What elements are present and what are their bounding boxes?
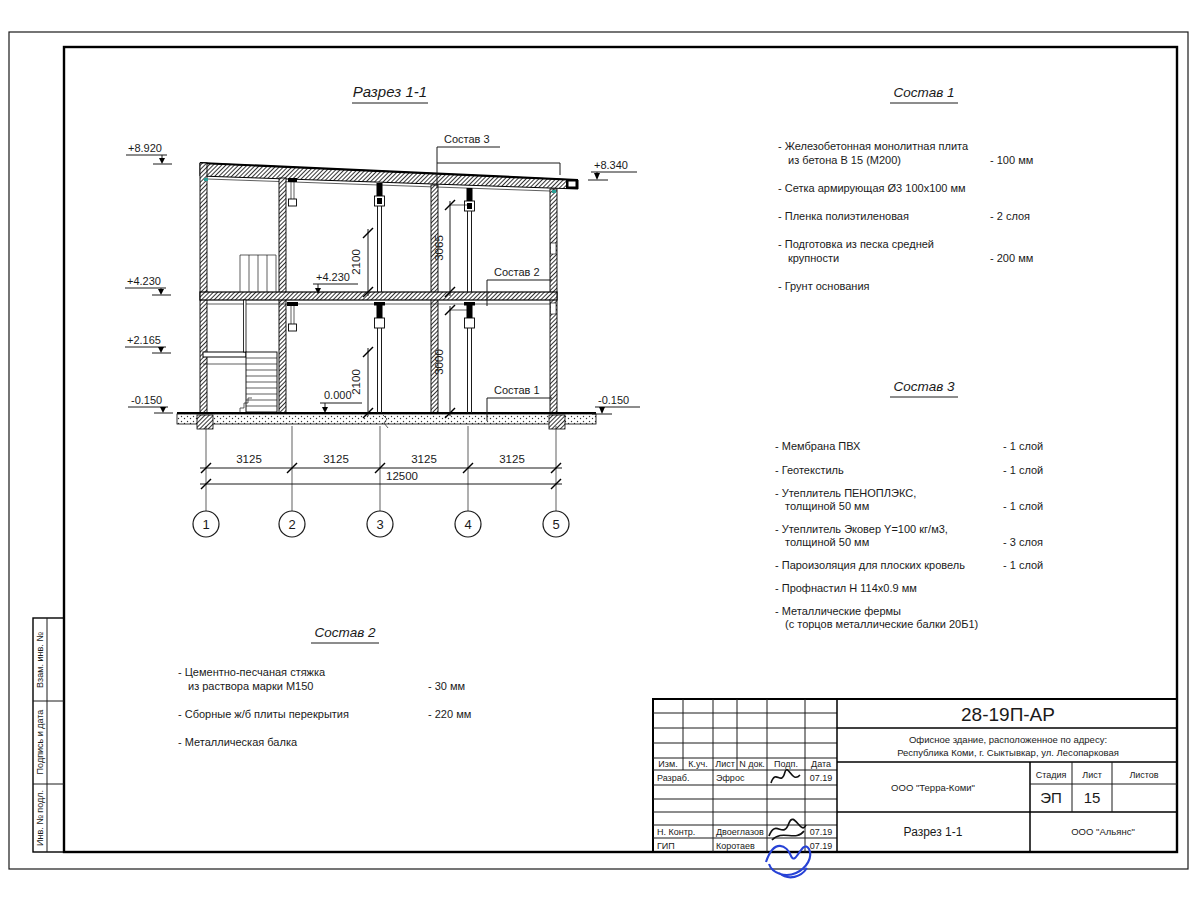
list-item: - Сборные ж/б плиты перекрытия <box>178 708 349 720</box>
grid-5: 5 <box>552 517 559 532</box>
row-role: Разраб. <box>657 773 689 783</box>
list-item: - Железобетонная монолитная плита <box>778 140 969 152</box>
list-item: из раствора марки М150 <box>188 680 313 692</box>
signature-razrab <box>771 770 800 783</box>
list-item: - Металлическая балка <box>178 736 298 748</box>
stair-railing <box>240 255 276 292</box>
strip-label-vzam: Взам. инв. № <box>35 632 45 688</box>
th-sheet: Лист <box>1082 770 1102 780</box>
contractor-name: ООО "Альянс" <box>1071 826 1135 837</box>
left-attribute-strip: Взам. инв. № Подпись и дата Инв. № подл. <box>33 618 64 852</box>
object-line2: Республика Коми, г. Сыктывкар, ул. Лесоп… <box>897 747 1119 758</box>
section-title: Разрез 1-1 <box>353 83 427 100</box>
list-item: - Утеплитель ПЕНОПЛЭКС, <box>775 487 916 499</box>
list-item: толщиной 50 мм <box>785 536 869 548</box>
list-value: - 200 мм <box>990 252 1033 264</box>
leader-sostav1: Состав 1 <box>494 384 540 396</box>
list-sostav-2: Состав 2 - Цементно-песчаная стяжка из р… <box>178 625 471 748</box>
list-value: - 3 слоя <box>1003 536 1043 548</box>
object-line1: Офисное здание, расположенное по адресу: <box>909 734 1107 745</box>
th-podp: Подп. <box>774 759 798 769</box>
drawing-name: Разрез 1-1 <box>904 825 963 839</box>
dim-span-1: 3125 <box>236 453 262 465</box>
list-value: - 1 слой <box>1003 559 1043 571</box>
dim-span-3: 3125 <box>411 453 437 465</box>
th-izm: Изм. <box>658 759 677 769</box>
stairs <box>203 255 277 413</box>
level-2165: +2.165 <box>127 334 161 346</box>
list-item: - Цементно-песчаная стяжка <box>178 666 326 678</box>
row-name: Коротаев <box>716 841 755 851</box>
stage-value: ЭП <box>1040 789 1062 806</box>
row-date: 07.19 <box>810 841 833 851</box>
leader-sostav3: Состав 3 <box>444 133 490 145</box>
vertical-dimensions: 2100 3065 2100 3000 <box>350 200 467 418</box>
list-item: из бетона В 15 (М200) <box>788 154 901 166</box>
list-value: - 2 слоя <box>990 210 1030 222</box>
grid-4: 4 <box>464 517 471 532</box>
list-value: - 1 слой <box>1003 464 1043 476</box>
th-kuch: К.уч. <box>688 759 707 769</box>
strip-label-podpis: Подпись и дата <box>35 710 45 775</box>
list-value: - 220 мм <box>428 708 471 720</box>
level-8340: +8.340 <box>594 159 628 171</box>
th-data: Дата <box>811 759 831 769</box>
title-block: Изм. К.уч. Лист N док. Подп. Дата Разраб… <box>653 699 1177 877</box>
th-ndoc: N док. <box>739 759 765 769</box>
list-item: - Металлические фермы <box>775 605 901 617</box>
row-date: 07.19 <box>810 827 833 837</box>
th-stage: Стадия <box>1036 770 1067 780</box>
grid-1: 1 <box>202 517 209 532</box>
section-view: Разрез 1-1 <box>125 83 640 537</box>
level-8920: +8.920 <box>128 142 162 154</box>
org-name: ООО "Терра-Коми" <box>891 782 975 793</box>
dim-3065: 3065 <box>433 235 445 261</box>
row-role: ГИП <box>657 841 675 851</box>
drawing-sheet: Взам. инв. № Подпись и дата Инв. № подл.… <box>0 0 1200 900</box>
list-value: - 1 слой <box>1003 500 1043 512</box>
leader-sostav2: Состав 2 <box>494 266 540 278</box>
th-sheets: Листов <box>1129 770 1158 780</box>
list-value: - 1 слой <box>1003 440 1043 452</box>
signature-nkontr <box>769 819 806 840</box>
level-4230-left: +4.230 <box>127 275 161 287</box>
strip-label-inv: Инв. № подл. <box>35 790 45 846</box>
list-item: толщиной 50 мм <box>785 500 869 512</box>
grid-bubbles: 1 2 3 4 5 <box>193 511 569 537</box>
list-item: - Пароизоляция для плоских кровель <box>775 559 965 571</box>
roof-slab <box>200 163 578 191</box>
list-item: - Сетка армирующая Ø3 100х100 мм <box>778 182 966 194</box>
row-name: Эфрос <box>716 773 745 783</box>
elevation-marks-right: +8.340 -0.150 <box>588 159 640 414</box>
list-item: - Грунт основания <box>778 280 870 292</box>
row-name: Двоеглазов <box>716 827 764 837</box>
sheet-canvas: Взам. инв. № Подпись и дата Инв. № подл.… <box>0 0 1200 900</box>
grid-2: 2 <box>288 517 295 532</box>
list-item: - Геотекстиль <box>775 464 844 476</box>
sheet-value: 15 <box>1084 789 1101 806</box>
grid-3: 3 <box>376 517 383 532</box>
th-list: Лист <box>715 759 735 769</box>
level-minus0150-right: -0.150 <box>598 394 629 406</box>
list-item: - Утеплитель Эковер Y=100 кг/м3, <box>775 523 948 535</box>
list-value: - 30 мм <box>428 680 465 692</box>
list-sostav-1: Состав 1 - Железобетонная монолитная пли… <box>778 85 1033 292</box>
level-4230-inner: +4.230 <box>316 271 350 283</box>
dim-total: 12500 <box>386 470 418 482</box>
row-date: 07.19 <box>810 773 833 783</box>
dim-3000: 3000 <box>433 349 445 375</box>
ground-slab <box>177 413 596 429</box>
list-item: - Пленка полиэтиленовая <box>778 210 909 222</box>
doc-code: 28-19П-АР <box>961 704 1055 725</box>
signature-gip <box>766 846 810 877</box>
list-value: - 100 мм <box>990 154 1033 166</box>
level-minus0150-left: -0.150 <box>131 394 162 406</box>
list-item: (с торцов металлические балки 20Б1) <box>785 618 978 630</box>
list-item: крупности <box>788 252 839 264</box>
dim-2100-lower: 2100 <box>350 369 362 395</box>
bottom-dimensions: 3125 3125 3125 3125 12500 1 2 3 4 5 <box>193 426 569 537</box>
list1-title: Состав 1 <box>894 85 955 100</box>
list2-title: Состав 2 <box>315 625 376 640</box>
list-sostav-3: Состав 3 - Мембрана ПВХ - 1 слой - Геоте… <box>775 379 1043 630</box>
dim-span-4: 3125 <box>499 453 525 465</box>
list-item: - Профнастил Н 114х0.9 мм <box>775 582 917 594</box>
list3-title: Состав 3 <box>894 379 955 394</box>
level-0000: 0.000 <box>324 389 352 401</box>
dim-2100-upper: 2100 <box>350 249 362 275</box>
elevation-marks-left: +8.920 +4.230 +2.165 -0.15 <box>125 142 173 413</box>
dim-span-2: 3125 <box>323 453 349 465</box>
list-item: - Мембрана ПВХ <box>775 440 861 452</box>
row-role: Н. Контр. <box>657 827 695 837</box>
list-item: - Подготовка из песка средней <box>778 238 934 250</box>
